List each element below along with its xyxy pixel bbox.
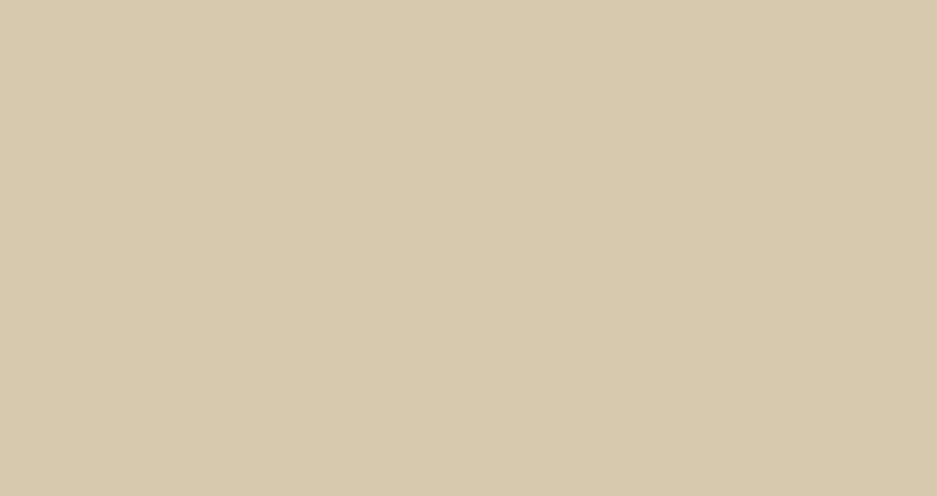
aerial-architectural-rendering [0,0,937,496]
scene-stage [0,0,937,496]
